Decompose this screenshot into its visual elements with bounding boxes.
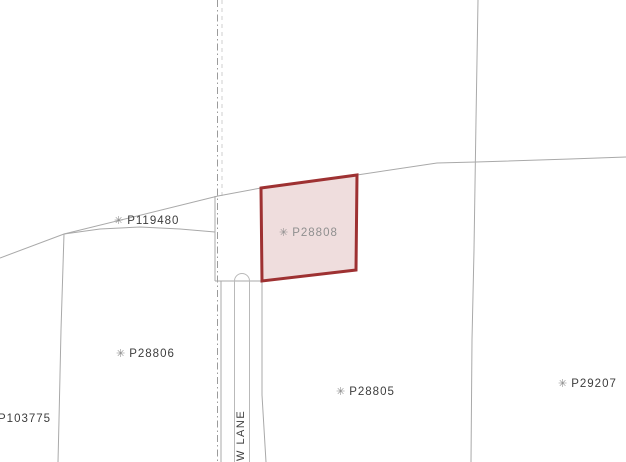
- asterisk-marker-icon: ✳: [336, 386, 346, 398]
- parcel-label-P28806: ✳P28806: [116, 346, 175, 362]
- parcel-id-text: P28805: [349, 386, 395, 398]
- parcel-label-P103775: P103775: [0, 411, 51, 427]
- parcel-id-text: P103775: [0, 413, 51, 425]
- asterisk-marker-icon: ✳: [116, 348, 126, 360]
- parcel-id-text: P119480: [127, 215, 179, 227]
- road-name-label: W LANE: [235, 410, 248, 461]
- parcel-label-P28808: ✳P28808: [279, 225, 338, 241]
- parcel-id-text: P28806: [129, 348, 175, 360]
- parcel-label-P119480: ✳P119480: [114, 213, 179, 229]
- boundary-east-vertical: [471, 0, 478, 462]
- boundary-east-upper: [357, 157, 626, 175]
- parcel-id-text: P29207: [571, 378, 617, 390]
- map-viewport[interactable]: ✳P119480✳P28806P103775✳P28805✳P29207✳P28…: [0, 0, 626, 462]
- parcel-id-text: P28808: [292, 227, 338, 239]
- parcel-label-P29207: ✳P29207: [558, 376, 617, 392]
- asterisk-marker-icon: ✳: [279, 227, 289, 239]
- road-east-edge: [262, 281, 266, 462]
- boundary-west-vertical: [58, 234, 64, 462]
- parcel-label-P28805: ✳P28805: [336, 384, 395, 400]
- asterisk-marker-icon: ✳: [114, 215, 124, 227]
- asterisk-marker-icon: ✳: [558, 378, 568, 390]
